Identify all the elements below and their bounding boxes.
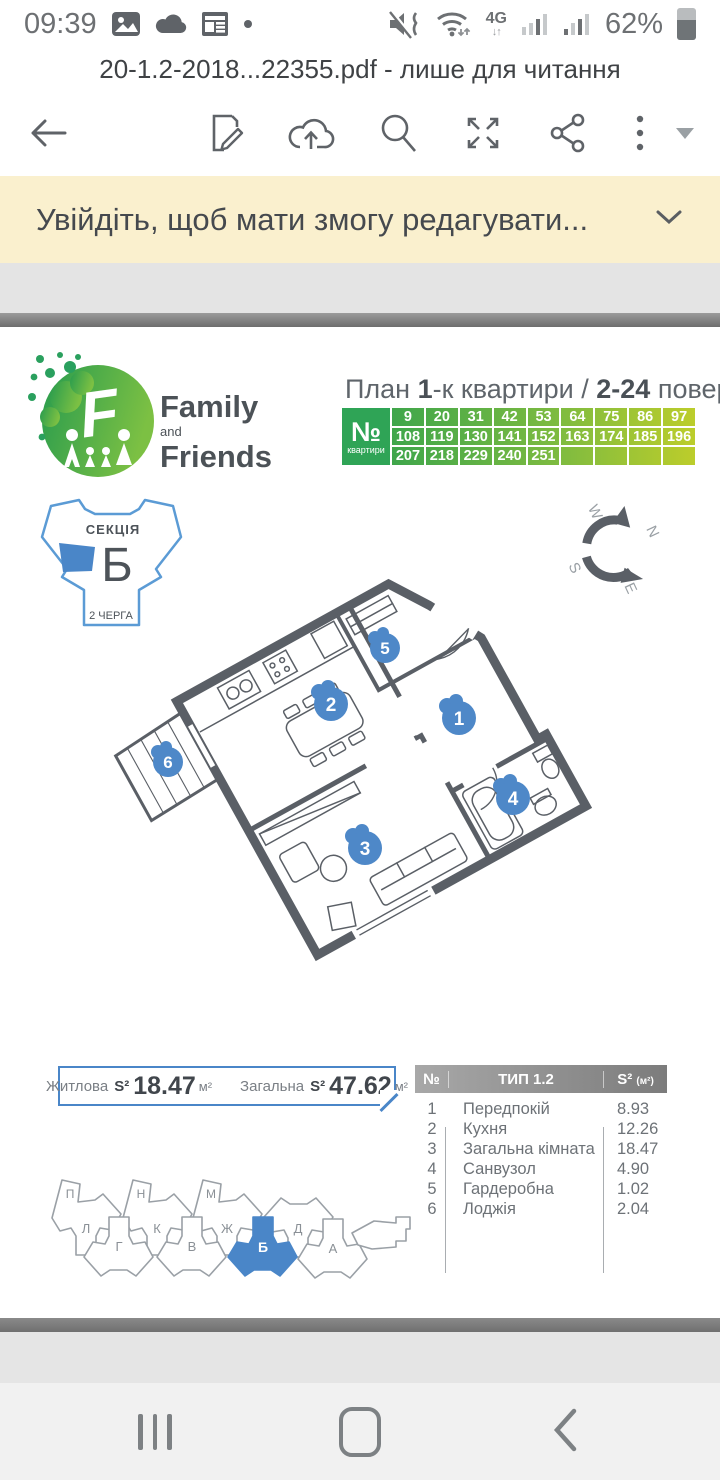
apt-cell: 108: [392, 428, 426, 446]
apt-cell: 185: [629, 428, 663, 446]
clock: 09:39: [24, 8, 97, 41]
pdf-toolbar: [0, 92, 720, 176]
apt-cell: [629, 447, 663, 465]
site-letter: П: [66, 1187, 75, 1201]
svg-text:5: 5: [380, 639, 389, 658]
network-4g-icon: 4G ↓↑: [486, 11, 507, 38]
svg-text:3: 3: [360, 839, 371, 860]
apt-cell: 42: [494, 408, 528, 426]
apartment-numbers-table: № квартири 92031425364758697 10811913014…: [342, 408, 695, 465]
header-area: S² (м²): [603, 1071, 667, 1088]
back-button[interactable]: [20, 106, 76, 162]
apt-cell: 20: [426, 408, 460, 426]
gallery-notification-icon: [111, 11, 141, 37]
living-area-value: 18.47: [133, 1072, 196, 1101]
apt-cell: 141: [494, 428, 528, 446]
page-shadow-top: [0, 313, 720, 327]
signal-bars-sim1-icon: [521, 11, 549, 37]
site-letter: Л: [82, 1221, 91, 1236]
svg-text:4: 4: [508, 789, 519, 810]
compass-s: S: [565, 560, 585, 576]
menu-caret-icon[interactable]: [676, 128, 694, 139]
back-arrow-icon: [25, 111, 71, 158]
document-title: 20-1.2-2018...22355.pdf - лише для читан…: [0, 48, 720, 92]
pdf-page[interactable]: F Family and Friends План 1-к квартири /…: [0, 327, 720, 1318]
battery-percent: 62%: [605, 8, 663, 41]
rooms-table-header: № ТИП 1.2 S² (м²): [415, 1065, 667, 1093]
cloud-notification-icon: [155, 13, 187, 35]
wifi-icon: [436, 9, 472, 39]
site-letter-highlighted: Б: [258, 1239, 268, 1255]
table-row: 5Гардеробна1.02: [415, 1179, 667, 1199]
banner-chevron-icon[interactable]: [654, 208, 684, 231]
viewer-background-bottom: [0, 1332, 720, 1383]
table-row: 1Передпокій8.93: [415, 1099, 667, 1119]
site-letter: Д: [294, 1221, 303, 1236]
share-button[interactable]: [540, 106, 596, 162]
kebab-menu-icon: [634, 111, 646, 158]
compass-e: E: [620, 580, 640, 596]
apt-cell: 119: [426, 428, 460, 446]
apt-cell: 152: [528, 428, 562, 446]
page-shadow-bottom: [0, 1318, 720, 1332]
more-notifications-dot: [243, 19, 253, 29]
apt-cell: 174: [595, 428, 629, 446]
total-area-s2: S²: [310, 1078, 325, 1095]
logo-and: and: [160, 425, 272, 438]
svg-text:1: 1: [454, 709, 465, 730]
apartment-numbers-label: № квартири: [342, 408, 392, 465]
area-summary: Житлова S² 18.47 м² Загальна S² 47.62 м²: [58, 1066, 396, 1106]
apt-cell: 53: [528, 408, 562, 426]
apt-cell: [561, 447, 595, 465]
site-letter: Ж: [221, 1221, 233, 1236]
svg-text:2: 2: [326, 695, 337, 716]
recents-icon: [138, 1414, 172, 1450]
edit-document-icon: [202, 110, 248, 159]
apt-cell: 97: [663, 408, 695, 426]
apt-cell: 218: [426, 447, 460, 465]
back-nav-button[interactable]: [505, 1383, 625, 1480]
developer-logo: F: [26, 349, 160, 488]
logo-family: Family: [160, 391, 272, 422]
home-icon: [339, 1407, 381, 1457]
table-separator: [445, 1127, 446, 1273]
signin-banner-text: Увійдіть, щоб мати змогу редагувати...: [36, 202, 588, 238]
section-label: СЕКЦІЯ: [86, 522, 140, 537]
site-letter: Н: [137, 1187, 146, 1201]
apt-cell: 207: [392, 447, 426, 465]
apt-cell: 75: [595, 408, 629, 426]
site-letter: В: [188, 1239, 197, 1254]
fullscreen-expand-icon: [461, 111, 505, 158]
table-row: 4Санвузол4.90: [415, 1159, 667, 1179]
total-area-label: Загальна: [240, 1078, 304, 1095]
table-row: 3Загальна кімната18.47: [415, 1139, 667, 1159]
cloud-upload-button[interactable]: [283, 106, 339, 162]
rooms-table: № ТИП 1.2 S² (м²) 1Передпокій8.93 2Кухня…: [415, 1065, 667, 1219]
home-button[interactable]: [300, 1383, 420, 1480]
overflow-menu-button[interactable]: [620, 106, 660, 162]
recents-button[interactable]: [95, 1383, 215, 1480]
living-area-s2: S²: [114, 1078, 129, 1095]
corner-cut-decoration: [380, 1090, 397, 1107]
viewer-background-top: [0, 263, 720, 313]
header-no: №: [415, 1071, 449, 1088]
table-row: 6Лоджія2.04: [415, 1199, 667, 1219]
plan-title: План 1-к квартири / 2-24 поверхи: [345, 374, 720, 405]
compass-n: N: [642, 523, 662, 540]
cloud-upload-icon: [286, 113, 336, 156]
apt-cell: 229: [460, 447, 494, 465]
android-screen: 09:39 4G ↓↑: [0, 0, 720, 1480]
site-letter: М: [206, 1187, 216, 1201]
edit-document-button[interactable]: [197, 106, 253, 162]
table-separator: [603, 1127, 604, 1273]
living-area-unit: м²: [199, 1079, 212, 1094]
battery-icon: [677, 8, 696, 40]
site-letter: К: [153, 1221, 161, 1236]
share-icon: [546, 111, 590, 158]
apt-cell: [595, 447, 629, 465]
site-plan: П Л Г Н К В М Ж Б Д А: [40, 1165, 420, 1310]
apt-cell: 86: [629, 408, 663, 426]
apt-cell: 64: [561, 408, 595, 426]
apt-cell: 130: [460, 428, 494, 446]
svg-text:6: 6: [163, 753, 172, 772]
apt-cell: 251: [528, 447, 562, 465]
apt-cell: 240: [494, 447, 528, 465]
signal-bars-sim2-icon: [563, 11, 591, 37]
apt-cell: 31: [460, 408, 494, 426]
news-notification-icon: [201, 11, 229, 37]
back-nav-icon: [551, 1407, 579, 1456]
floor-plan: 1 2 3 4 5 6: [100, 575, 620, 995]
search-button[interactable]: [370, 106, 426, 162]
logo-friends: Friends: [160, 441, 272, 472]
apt-cell: 163: [561, 428, 595, 446]
status-bar: 09:39 4G ↓↑: [0, 0, 720, 48]
fullscreen-button[interactable]: [455, 106, 511, 162]
search-icon: [376, 111, 420, 158]
android-nav-bar: [0, 1383, 720, 1480]
living-area-label: Житлова: [46, 1078, 108, 1095]
apt-cell: [663, 447, 695, 465]
section-highlight: [59, 543, 95, 572]
mute-vibrate-icon: [388, 9, 422, 39]
site-letter: А: [329, 1241, 338, 1256]
site-letter: Г: [115, 1239, 122, 1254]
apt-cell: 196: [663, 428, 695, 446]
header-type: ТИП 1.2: [449, 1071, 603, 1088]
table-row: 2Кухня12.26: [415, 1119, 667, 1139]
apt-cell: 9: [392, 408, 426, 426]
signin-banner[interactable]: Увійдіть, щоб мати змогу редагувати...: [0, 176, 720, 263]
developer-logo-text: Family and Friends: [160, 391, 272, 472]
